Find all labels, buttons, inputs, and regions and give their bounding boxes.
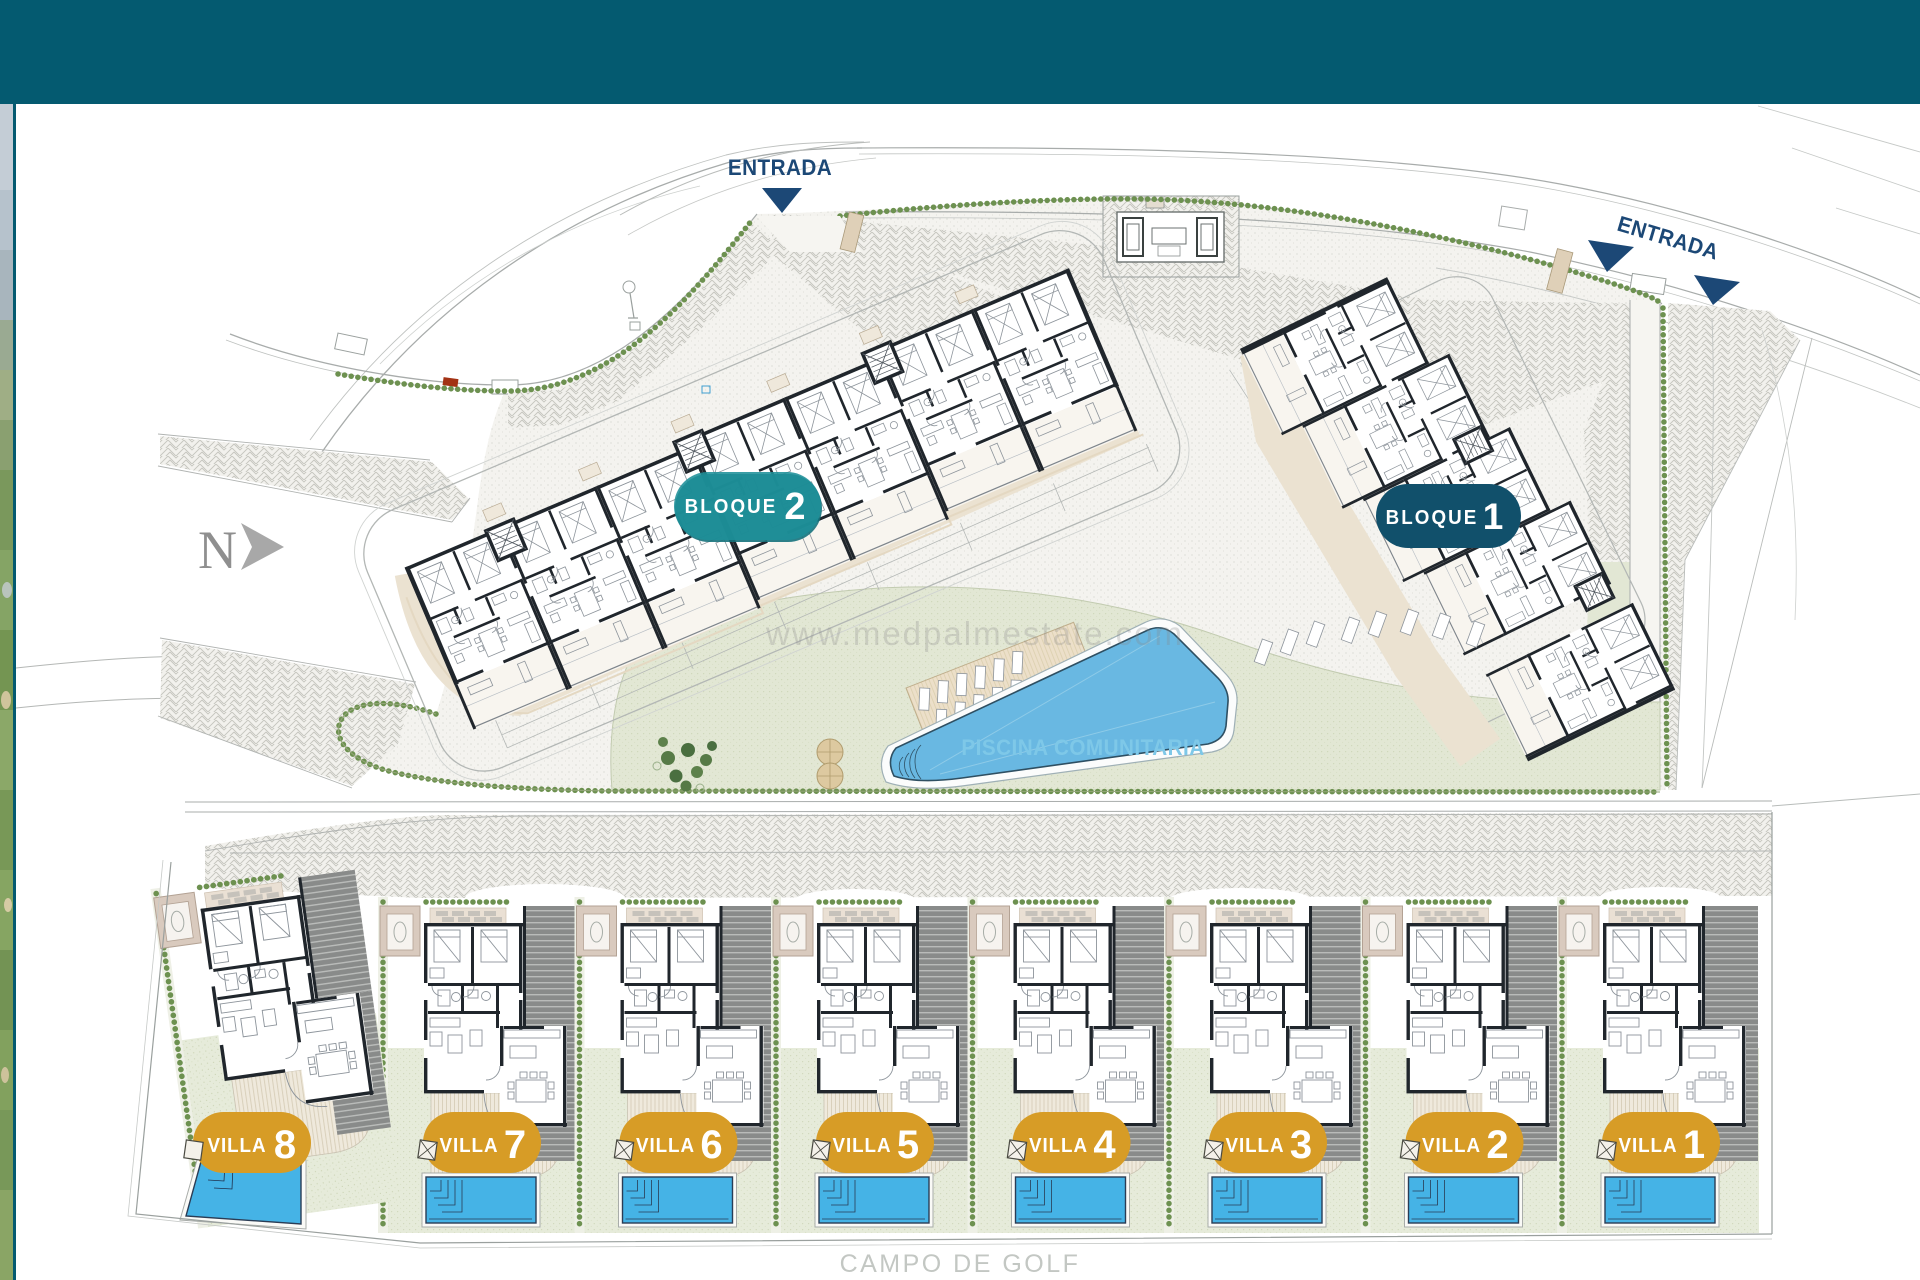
svg-text:VILLA: VILLA: [833, 1134, 892, 1157]
svg-text:2: 2: [784, 486, 805, 528]
svg-text:2: 2: [1486, 1123, 1508, 1167]
svg-text:VILLA: VILLA: [1619, 1134, 1678, 1157]
svg-text:8: 8: [274, 1123, 296, 1167]
svg-text:VILLA: VILLA: [208, 1134, 267, 1157]
svg-text:N: N: [198, 520, 237, 580]
svg-text:VILLA: VILLA: [1226, 1134, 1285, 1157]
svg-text:1: 1: [1683, 1123, 1705, 1167]
svg-text:BLOQUE: BLOQUE: [1386, 506, 1479, 529]
svg-text:BLOQUE: BLOQUE: [685, 495, 778, 518]
svg-text:1: 1: [1483, 496, 1504, 537]
svg-text:ENTRADA: ENTRADA: [728, 155, 832, 180]
svg-text:4: 4: [1093, 1123, 1116, 1167]
svg-text:PISCINA COMUNITARIA: PISCINA COMUNITARIA: [961, 735, 1204, 760]
svg-text:VILLA: VILLA: [1029, 1134, 1088, 1157]
svg-text:3: 3: [1290, 1123, 1312, 1167]
svg-text:VILLA: VILLA: [1422, 1134, 1481, 1157]
svg-text:6: 6: [700, 1123, 722, 1167]
svg-text:www.medpalmestate.com: www.medpalmestate.com: [765, 615, 1184, 652]
svg-text:VILLA: VILLA: [636, 1134, 695, 1157]
svg-text:7: 7: [504, 1123, 526, 1167]
svg-text:VILLA: VILLA: [440, 1134, 499, 1157]
svg-text:CAMPO DE GOLF: CAMPO DE GOLF: [840, 1250, 1081, 1278]
svg-text:5: 5: [897, 1123, 919, 1167]
